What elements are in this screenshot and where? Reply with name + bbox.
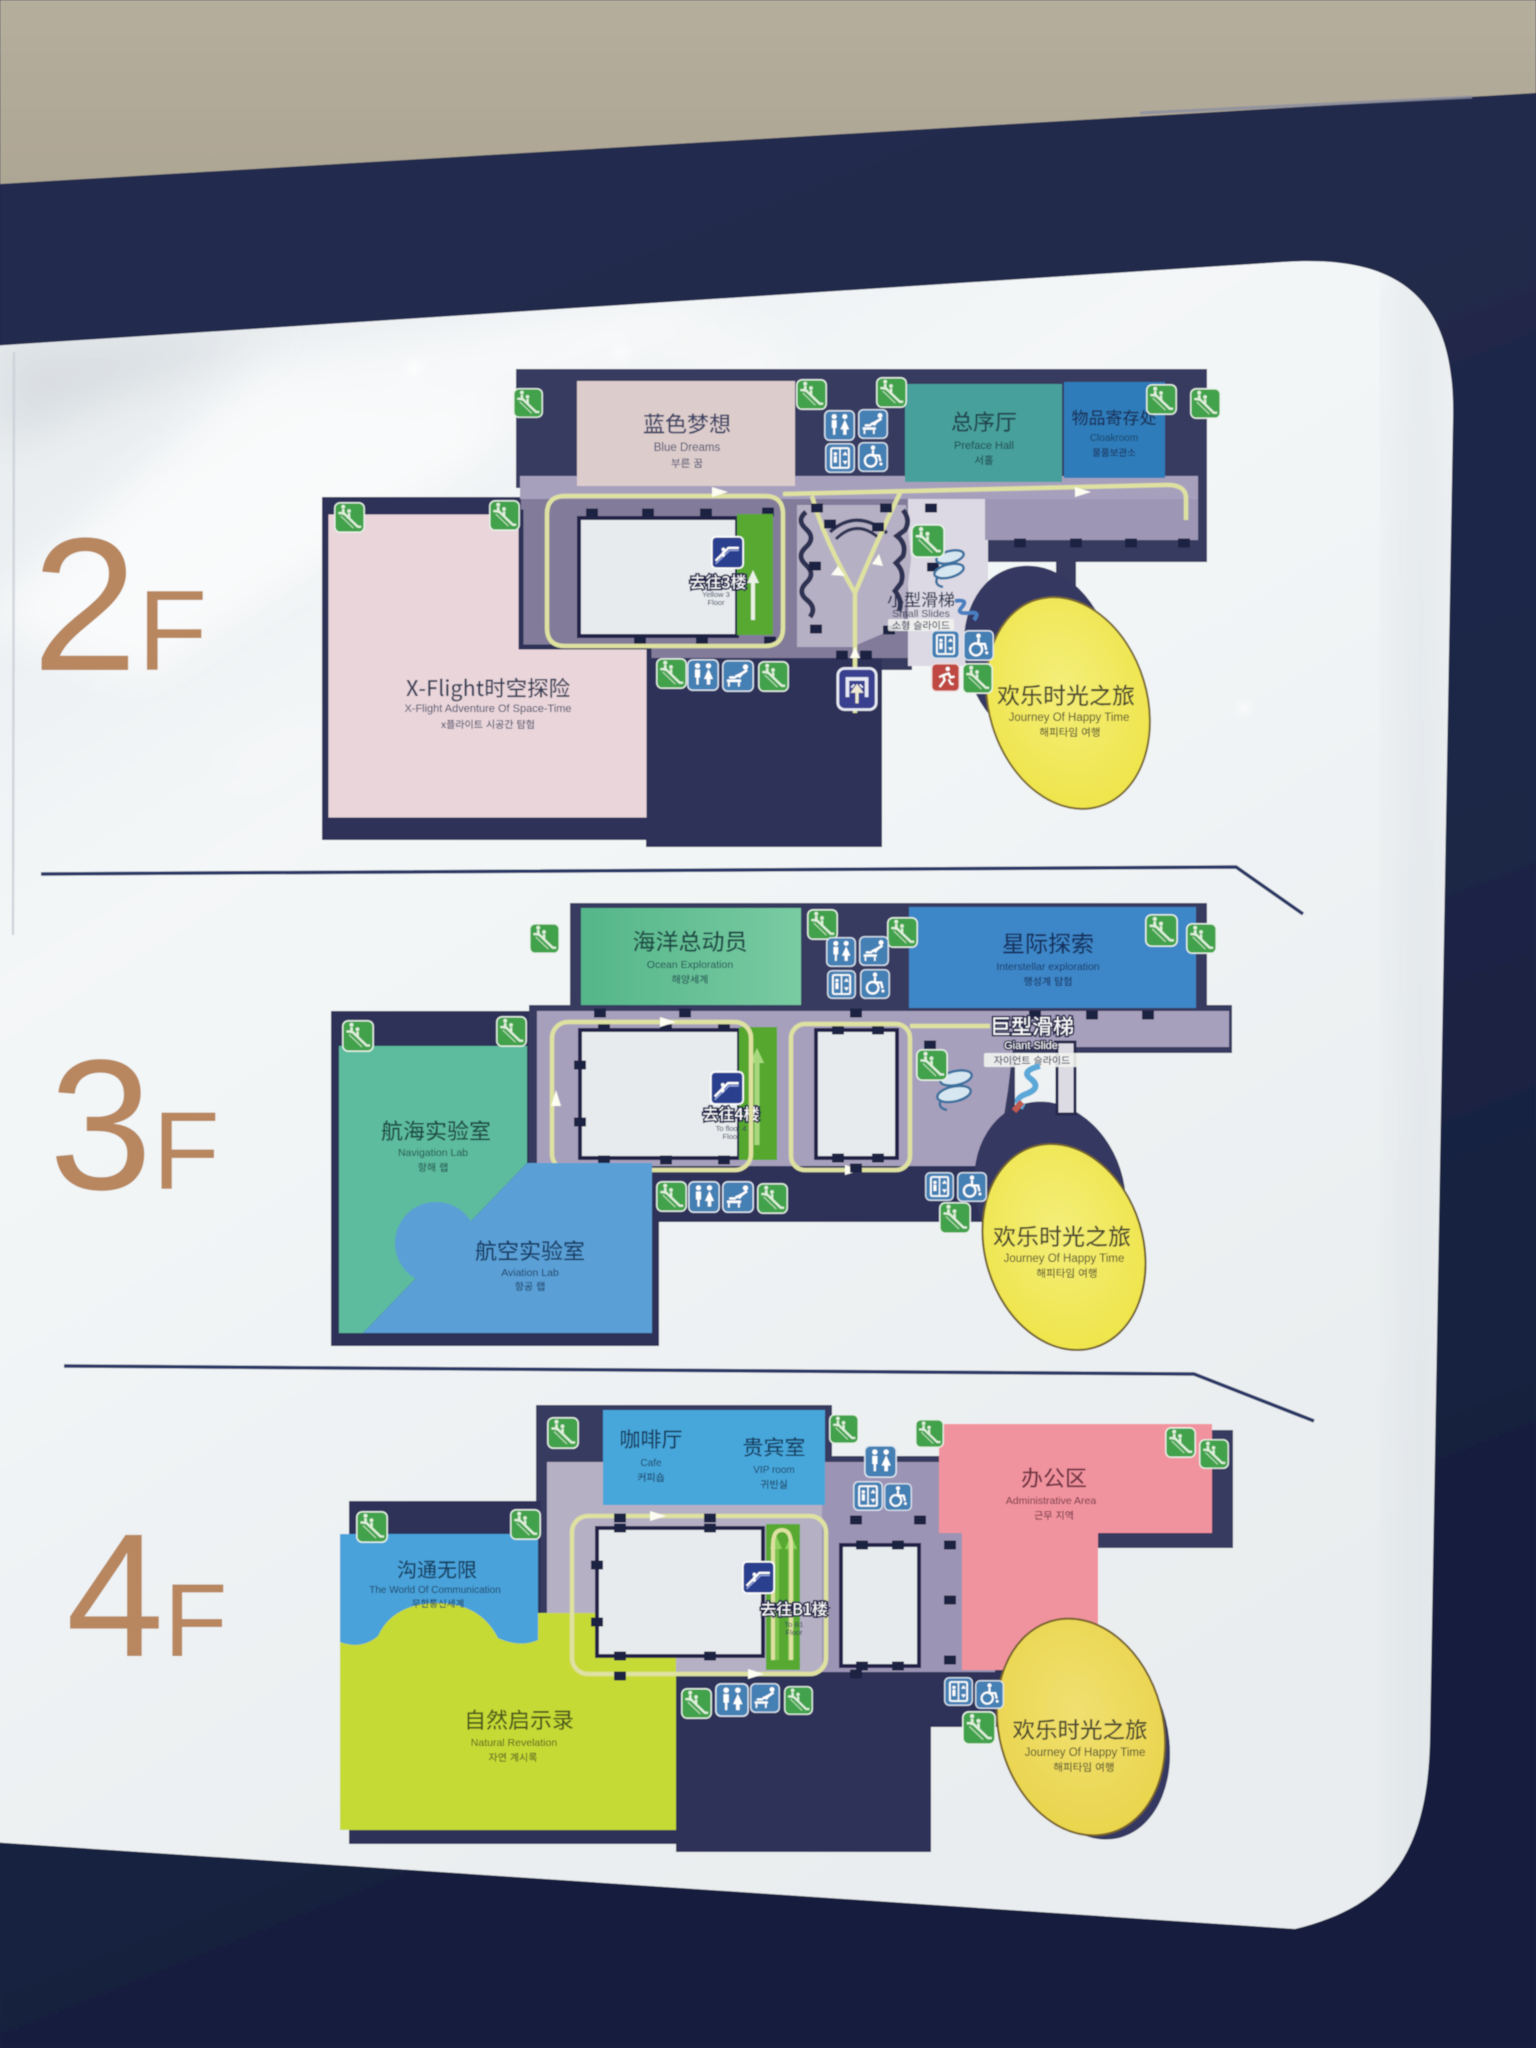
svg-text:Administrative Area: Administrative Area (1006, 1495, 1097, 1507)
svg-text:Ocean Exploration: Ocean Exploration (647, 959, 734, 971)
svg-text:Cafe: Cafe (640, 1458, 662, 1469)
svg-text:Journey Of Happy Time: Journey Of Happy Time (1004, 1253, 1125, 1265)
svg-text:Floor: Floor (785, 1628, 803, 1637)
svg-text:Navigation Lab: Navigation Lab (398, 1147, 468, 1159)
svg-text:Journey Of Happy Time: Journey Of Happy Time (1025, 1747, 1146, 1759)
svg-text:VIP room: VIP room (753, 1465, 795, 1476)
svg-text:The World Of Communication: The World Of Communication (369, 1585, 501, 1596)
svg-text:Blue Dreams: Blue Dreams (654, 442, 721, 454)
svg-text:Aviation Lab: Aviation Lab (501, 1267, 559, 1279)
svg-text:Giant Slide: Giant Slide (1004, 1040, 1058, 1052)
svg-text:X-Flight Adventure Of Space-Ti: X-Flight Adventure Of Space-Time (404, 703, 571, 715)
svg-text:Floor: Floor (722, 1132, 740, 1141)
svg-text:Floor: Floor (707, 598, 725, 607)
svg-text:Preface Hall: Preface Hall (954, 440, 1014, 452)
svg-text:Natural Revelation: Natural Revelation (471, 1737, 558, 1749)
svg-text:Journey Of Happy Time: Journey Of Happy Time (1009, 712, 1130, 724)
svg-text:Cloakroom: Cloakroom (1090, 433, 1138, 444)
svg-text:Small Slides: Small Slides (892, 608, 950, 620)
svg-text:Interstellar exploration: Interstellar exploration (996, 961, 1099, 973)
